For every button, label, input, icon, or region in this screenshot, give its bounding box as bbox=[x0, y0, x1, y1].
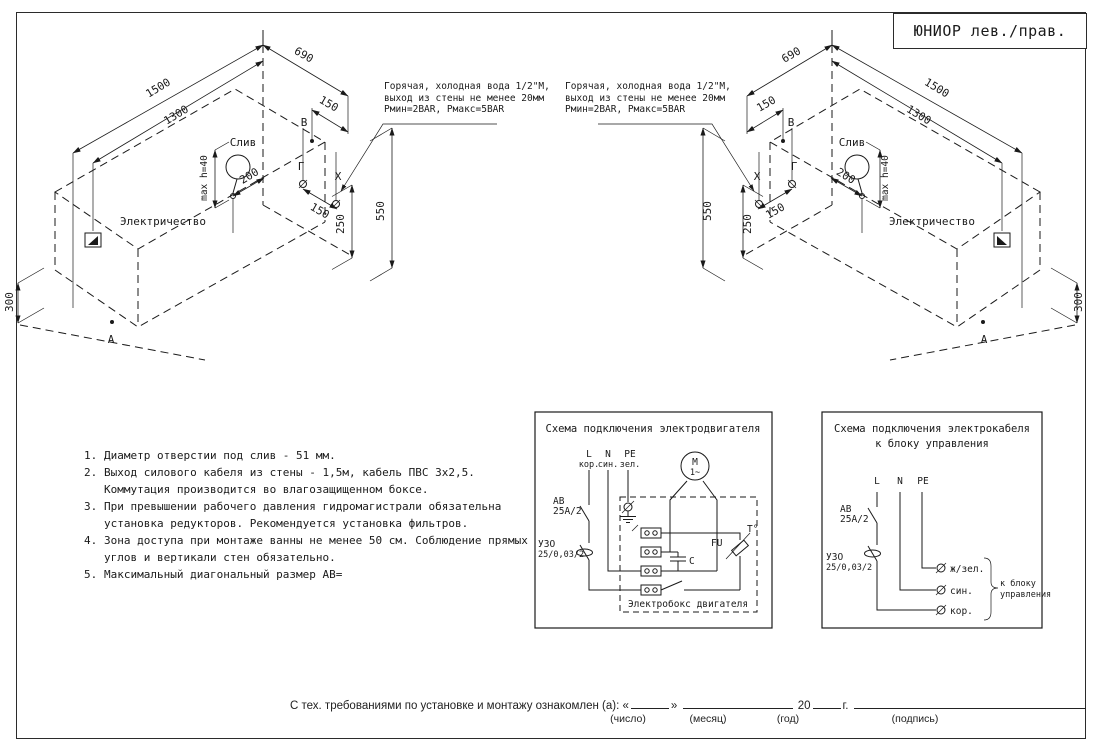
signature-text: С тех. требованиями по установке и монта… bbox=[290, 700, 619, 712]
note-2: 2.Выход силового кабеля из стены - 1,5м,… bbox=[84, 464, 528, 481]
isometric-view-right-lines bbox=[598, 30, 1077, 360]
dim-300-left: 300 bbox=[3, 292, 16, 312]
dim-150-top-right: 150 bbox=[754, 93, 778, 114]
dim-550-left: 550 bbox=[374, 201, 387, 221]
year-prefix: 20 bbox=[798, 700, 811, 712]
note-4-num: 4. bbox=[84, 532, 104, 549]
note-3-text2: установка редукторов. Рекомендуется уста… bbox=[104, 515, 468, 532]
dim-1300-left: 1300 bbox=[161, 103, 190, 128]
year-suffix: г. bbox=[843, 700, 849, 712]
note-3: 3.При превышении рабочего давления гидро… bbox=[84, 498, 528, 515]
quote-close: » bbox=[671, 700, 677, 712]
note-4: 4.Зона доступа при монтаже ванны не мене… bbox=[84, 532, 528, 549]
dim-250-right: 250 bbox=[741, 214, 754, 234]
dim-1300-right: 1300 bbox=[904, 103, 933, 128]
point-a-left: А bbox=[108, 333, 115, 346]
installation-notes: 1.Диаметр отверстии под слив - 51 мм. 2.… bbox=[84, 447, 528, 583]
water-note-left-line3: Рмин=2BAR, Рмакс=5BAR bbox=[384, 104, 550, 116]
note-4-text2: углов и вертикали стен обязательно. bbox=[104, 549, 336, 566]
note-5-num: 5. bbox=[84, 566, 104, 583]
signature-blank bbox=[854, 697, 1086, 709]
scheme-cable-pe: PE bbox=[917, 476, 929, 487]
scheme-cable-bracket2: управления bbox=[1000, 590, 1051, 600]
iso-right-texts: 1500 1300 690 150 150 200 250 550 300 ma… bbox=[701, 44, 1085, 346]
scheme-motor-breaker-rating: 25А/2 bbox=[553, 506, 582, 517]
note-1-num: 1. bbox=[84, 447, 104, 464]
note-5-text: Максимальный диагональный размер АВ= bbox=[104, 566, 342, 583]
point-g-left: Г bbox=[298, 160, 305, 173]
drawing-sheet: ЮНИОР лев./прав. bbox=[0, 0, 1095, 747]
water-note-right: Горячая, холодная вода 1/2"М, выход из с… bbox=[565, 81, 731, 116]
label-day: (число) bbox=[610, 713, 646, 725]
drain-label-right: Слив bbox=[839, 136, 866, 149]
point-g-right: Г bbox=[791, 160, 798, 173]
dim-550-right: 550 bbox=[701, 201, 714, 221]
note-1-text: Диаметр отверстии под слив - 51 мм. bbox=[104, 447, 336, 464]
dim-maxh-right: max h=40 bbox=[880, 155, 891, 201]
water-note-left: Горячая, холодная вода 1/2"М, выход из с… bbox=[384, 81, 550, 116]
point-b-right: В bbox=[788, 116, 795, 129]
electricity-label-left: Электричество bbox=[120, 215, 206, 228]
scheme-cable-rcd: УЗО bbox=[826, 552, 843, 563]
dim-250-left: 250 bbox=[334, 214, 347, 234]
scheme-cable-wire-n: син. bbox=[950, 586, 973, 597]
scheme-cable-title1: Схема подключения электрокабеля bbox=[834, 423, 1030, 435]
dim-maxh-left: max h=40 bbox=[199, 155, 210, 201]
point-x-right: X bbox=[754, 170, 761, 183]
scheme-motor-n-color: син. bbox=[598, 460, 618, 470]
month-blank bbox=[683, 697, 793, 709]
label-sign: (подпись) bbox=[892, 713, 939, 725]
scheme-cable-wire-l: кор. bbox=[950, 606, 973, 617]
scheme-cable-title2: к блоку управления bbox=[875, 438, 989, 450]
year-blank bbox=[813, 697, 841, 709]
label-year: (год) bbox=[777, 713, 799, 725]
scheme-motor-l-color: кор. bbox=[579, 460, 599, 470]
scheme-cable-rcd-rating: 25/0,03/2 bbox=[826, 563, 872, 573]
scheme-cable-wire-pe: ж/зел. bbox=[950, 564, 984, 575]
water-note-right-line2: выход из стены не менее 20мм bbox=[565, 93, 731, 105]
water-note-left-line1: Горячая, холодная вода 1/2"М, bbox=[384, 81, 550, 93]
drain-label-left: Слив bbox=[230, 136, 257, 149]
note-2-text: Выход силового кабеля из стены - 1,5м, к… bbox=[104, 464, 475, 481]
point-a-right: А bbox=[981, 333, 988, 346]
dim-200-left: 200 bbox=[237, 165, 261, 186]
dim-300-right: 300 bbox=[1072, 292, 1085, 312]
scheme-cable-l: L bbox=[874, 476, 880, 487]
scheme-motor-rcd-rating: 25/0,03/2 bbox=[538, 550, 584, 560]
label-month: (месяц) bbox=[689, 713, 726, 725]
scheme-motor-thermal: Т° bbox=[747, 524, 758, 535]
dim-1500-left: 1500 bbox=[143, 76, 172, 101]
water-note-left-line2: выход из стены не менее 20мм bbox=[384, 93, 550, 105]
dim-1500-right: 1500 bbox=[922, 76, 951, 101]
scheme-motor-title: Схема подключения электродвигателя bbox=[546, 423, 761, 435]
dim-690-left: 690 bbox=[292, 44, 316, 65]
dim-690-right: 690 bbox=[779, 44, 803, 65]
note-3-text: При превышении рабочего давления гидрома… bbox=[104, 498, 501, 515]
iso-left-texts: 1500 1300 690 150 150 200 250 550 300 ma… bbox=[3, 44, 387, 346]
quote-open: « bbox=[623, 700, 629, 712]
scheme-motor-m: М bbox=[692, 457, 698, 468]
scheme-cable-n: N bbox=[897, 476, 903, 487]
electricity-label-right: Электричество bbox=[889, 215, 975, 228]
scheme-motor-pe-color: зел. bbox=[620, 460, 640, 470]
scheme-motor-n: N bbox=[605, 449, 611, 460]
signature-row: С тех. требованиями по установке и монта… bbox=[290, 697, 1088, 712]
note-4-text: Зона доступа при монтаже ванны не менее … bbox=[104, 532, 528, 549]
isometric-view-left-lines bbox=[18, 30, 497, 360]
water-note-right-line3: Рмин=2BAR, Рмакс=5BAR bbox=[565, 104, 731, 116]
scheme-motor-fuse: FU bbox=[711, 538, 723, 549]
dim-200-right: 200 bbox=[834, 165, 858, 186]
note-1: 1.Диаметр отверстии под слив - 51 мм. bbox=[84, 447, 528, 464]
scheme-motor-lines bbox=[535, 412, 772, 628]
scheme-motor-texts: Схема подключения электродвигателя L кор… bbox=[538, 423, 760, 610]
scheme-cable-bracket1: к блоку bbox=[1000, 578, 1036, 589]
scheme-cable-texts: Схема подключения электрокабеля к блоку … bbox=[826, 423, 1051, 617]
day-blank bbox=[631, 697, 669, 709]
scheme-motor-rcd: УЗО bbox=[538, 539, 555, 550]
scheme-motor-phase: 1~ bbox=[690, 468, 700, 478]
scheme-motor-pe: PE bbox=[624, 449, 636, 460]
point-x-left: X bbox=[335, 170, 342, 183]
note-2-text2: Коммутация производится во влагозащищенн… bbox=[104, 481, 429, 498]
note-5: 5.Максимальный диагональный размер АВ= bbox=[84, 566, 528, 583]
note-2-num: 2. bbox=[84, 464, 104, 481]
scheme-cable-breaker-rating: 25А/2 bbox=[840, 514, 869, 525]
scheme-motor-cap: C bbox=[689, 556, 695, 567]
scheme-motor-l: L bbox=[586, 449, 592, 460]
note-3-num: 3. bbox=[84, 498, 104, 515]
dim-150-top-left: 150 bbox=[317, 93, 341, 114]
scheme-motor-box-label: Электробокс двигателя bbox=[628, 599, 748, 610]
water-note-right-line1: Горячая, холодная вода 1/2"М, bbox=[565, 81, 731, 93]
point-b-left: В bbox=[301, 116, 308, 129]
